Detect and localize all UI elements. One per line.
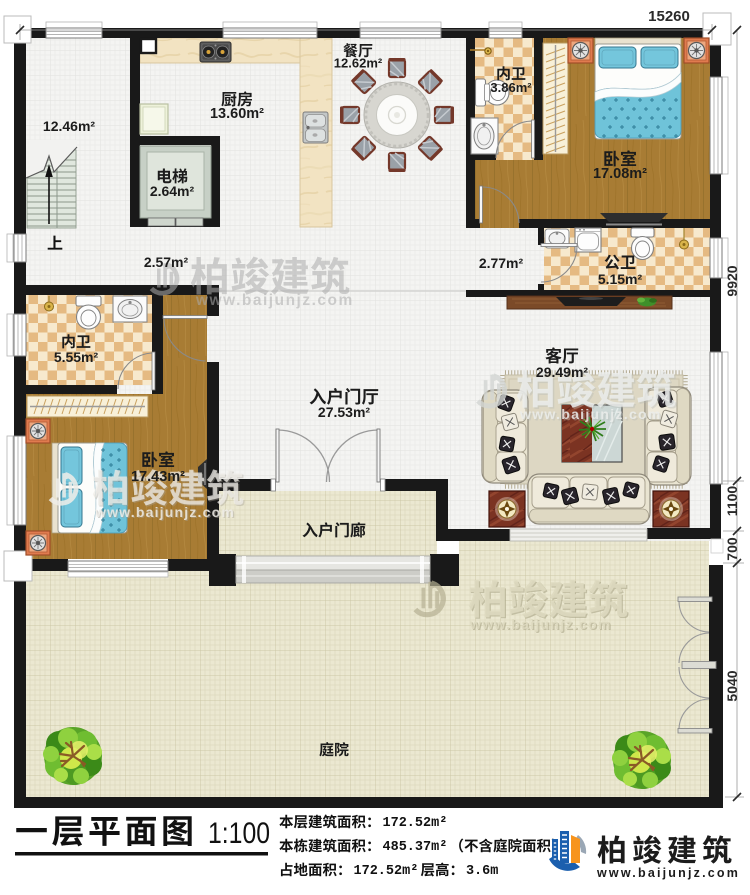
svg-text:172.52m²: 172.52m²	[354, 864, 419, 879]
svg-text:9920: 9920	[724, 265, 740, 296]
svg-text:172.52m²: 172.52m²	[383, 816, 448, 831]
svg-text:700: 700	[724, 537, 740, 561]
svg-text:www.baijunjz.com: www.baijunjz.com	[519, 406, 662, 422]
svg-text:3.6m: 3.6m	[466, 864, 498, 879]
svg-text:17.43m²: 17.43m²	[131, 469, 185, 485]
svg-text:29.49m²: 29.49m²	[536, 364, 588, 380]
svg-text:12.62m²: 12.62m²	[334, 56, 383, 71]
svg-text:5040: 5040	[724, 670, 740, 701]
svg-text:5.55m²: 5.55m²	[54, 349, 99, 365]
svg-text:www.baijunjz.com: www.baijunjz.com	[195, 292, 354, 309]
svg-text:13.60m²: 13.60m²	[210, 106, 264, 122]
svg-text:3.86m²: 3.86m²	[490, 80, 532, 95]
svg-text:www.baijunjz.com: www.baijunjz.com	[94, 504, 235, 520]
svg-text:17.08m²: 17.08m²	[593, 166, 647, 182]
svg-text:2.64m²: 2.64m²	[150, 183, 195, 199]
svg-text:27.53m²: 27.53m²	[318, 404, 370, 420]
svg-text:www.baijunjz.com: www.baijunjz.com	[469, 616, 612, 632]
svg-text:15260: 15260	[648, 8, 690, 25]
svg-text:485.37m²: 485.37m²	[383, 840, 448, 855]
svg-text:1:100: 1:100	[208, 817, 270, 850]
svg-text:2.77m²: 2.77m²	[479, 255, 524, 271]
svg-text:12.46m²: 12.46m²	[43, 118, 95, 134]
svg-text:5.15m²: 5.15m²	[598, 271, 643, 287]
svg-text:www.baijunjz.com: www.baijunjz.com	[596, 866, 740, 880]
svg-text:1100: 1100	[724, 486, 740, 517]
svg-text:2.57m²: 2.57m²	[144, 254, 189, 270]
